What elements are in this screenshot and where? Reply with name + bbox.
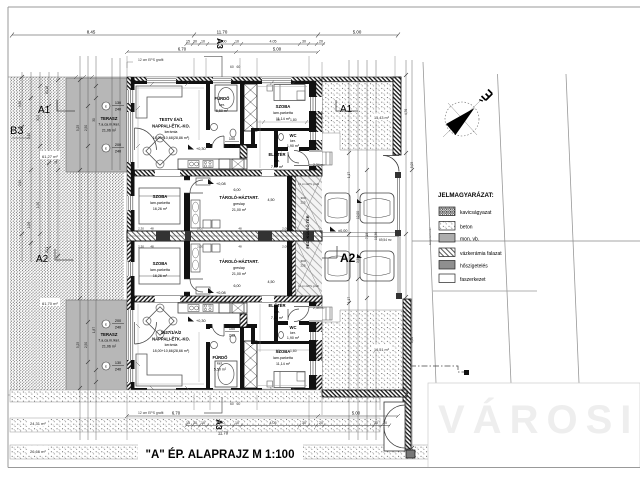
svg-text:1,90 m²: 1,90 m² xyxy=(287,336,300,340)
svg-text:225: 225 xyxy=(300,201,305,205)
svg-text:200: 200 xyxy=(115,143,121,147)
svg-text:10: 10 xyxy=(235,421,239,425)
svg-text:60: 60 xyxy=(230,65,234,69)
svg-text:5,50 m²: 5,50 m² xyxy=(216,109,229,113)
svg-text:300: 300 xyxy=(300,196,305,200)
svg-text:B3: B3 xyxy=(10,125,23,137)
svg-text:21,06 m²: 21,06 m² xyxy=(102,129,117,133)
svg-text:A3: A3 xyxy=(214,419,224,430)
svg-text:1,80: 1,80 xyxy=(290,349,297,353)
svg-text:10: 10 xyxy=(276,349,280,353)
svg-text:vázkerámia falazat: vázkerámia falazat xyxy=(460,251,502,257)
svg-text:A1: A1 xyxy=(38,105,51,116)
svg-text:WC: WC xyxy=(290,133,297,138)
svg-text:15: 15 xyxy=(186,40,190,44)
svg-text:ker.: ker. xyxy=(219,103,225,107)
svg-text:20: 20 xyxy=(319,40,323,44)
svg-text:7.a.ca.m./ker.: 7.a.ca.m./ker. xyxy=(98,123,120,127)
svg-text:TÁROLÓ-HÁZTART.: TÁROLÓ-HÁZTART. xyxy=(219,259,258,264)
svg-text:30: 30 xyxy=(193,40,197,44)
svg-text:hőszigetelés: hőszigetelés xyxy=(460,264,488,270)
svg-text:8.45: 8.45 xyxy=(87,30,96,35)
svg-text:FÜRDŐ: FÜRDŐ xyxy=(213,355,229,360)
svg-text:A3: A3 xyxy=(215,38,225,49)
svg-text:ker.: ker. xyxy=(274,159,280,163)
svg-text:130: 130 xyxy=(115,361,121,365)
svg-text:1,90 m²: 1,90 m² xyxy=(287,144,300,148)
svg-text:30: 30 xyxy=(302,40,306,44)
svg-text:1,17: 1,17 xyxy=(347,297,351,303)
svg-text:100: 100 xyxy=(229,137,235,141)
svg-text:61,27 m²: 61,27 m² xyxy=(42,154,58,159)
svg-text:61,70 m²: 61,70 m² xyxy=(42,301,58,306)
svg-text:WC: WC xyxy=(290,325,297,330)
svg-text:TÁROLÓ-HÁZTART.: TÁROLÓ-HÁZTART. xyxy=(219,195,258,200)
svg-text:213: 213 xyxy=(229,144,235,148)
svg-text:10: 10 xyxy=(276,118,280,122)
svg-text:2,30: 2,30 xyxy=(138,227,144,231)
svg-text:ELŐTÉR: ELŐTÉR xyxy=(269,303,286,308)
svg-text:6,00: 6,00 xyxy=(234,284,241,288)
svg-text:4,76: 4,76 xyxy=(404,109,408,115)
svg-text:greslap: greslap xyxy=(233,202,245,206)
svg-text:2,34 m²: 2,34 m² xyxy=(313,306,325,310)
svg-text:SZOBA: SZOBA xyxy=(153,261,168,266)
svg-text:E: E xyxy=(105,365,107,369)
svg-text:lam.parketta: lam.parketta xyxy=(273,111,293,115)
svg-text:4,50: 4,50 xyxy=(268,280,275,284)
svg-text:21,00 m²: 21,00 m² xyxy=(232,208,247,212)
svg-text:NAPPALI-ÉTK.-KO.: NAPPALI-ÉTK.-KO. xyxy=(152,337,190,342)
svg-text:lam.parketta: lam.parketta xyxy=(150,268,170,272)
svg-text:12 cm EPS grafit: 12 cm EPS grafit xyxy=(138,58,163,62)
svg-text:±0,00: ±0,00 xyxy=(338,229,347,233)
svg-text:20,1: 20,1 xyxy=(45,247,49,253)
svg-text:FED. KÜLSŐ TÉR: FED. KÜLSŐ TÉR xyxy=(305,215,310,248)
svg-text:2,00: 2,00 xyxy=(197,245,203,249)
svg-text:300: 300 xyxy=(300,259,305,263)
svg-text:30: 30 xyxy=(92,118,96,122)
svg-text:9,32: 9,32 xyxy=(18,101,22,107)
svg-text:5.00: 5.00 xyxy=(352,411,361,416)
svg-text:JELMAGYARÁZAT:: JELMAGYARÁZAT: xyxy=(438,192,494,199)
svg-text:240: 240 xyxy=(115,108,121,112)
svg-text:1,90: 1,90 xyxy=(36,202,40,208)
svg-text:FÜRDŐ: FÜRDŐ xyxy=(215,96,231,101)
svg-text:E: E xyxy=(105,147,107,151)
svg-text:5.00: 5.00 xyxy=(273,47,282,52)
svg-text:2,00: 2,00 xyxy=(197,227,203,231)
svg-text:1,17: 1,17 xyxy=(347,172,351,178)
svg-text:5,25: 5,25 xyxy=(76,125,80,131)
svg-text:240: 240 xyxy=(115,326,121,330)
svg-text:1,80: 1,80 xyxy=(290,118,297,122)
svg-text:NAPPALI-ÉTK.-KO.: NAPPALI-ÉTK.-KO. xyxy=(152,124,190,129)
svg-text:7,18: 7,18 xyxy=(365,233,369,239)
svg-text:16,26 m²: 16,26 m² xyxy=(153,274,168,278)
svg-text:5,05: 5,05 xyxy=(410,162,414,168)
svg-text:ker.: ker. xyxy=(290,139,296,143)
svg-text:7,62 m²: 7,62 m² xyxy=(271,165,284,169)
svg-text:A2: A2 xyxy=(36,254,49,265)
svg-text:TERASZ: TERASZ xyxy=(101,332,118,337)
svg-text:A1: A1 xyxy=(340,104,353,115)
svg-text:225: 225 xyxy=(300,264,305,268)
svg-text:130: 130 xyxy=(115,101,121,105)
svg-text:19,36: 19,36 xyxy=(374,232,378,240)
svg-text:10: 10 xyxy=(201,421,205,425)
svg-text:kavicságyazat: kavicságyazat xyxy=(460,210,492,216)
svg-text:10: 10 xyxy=(201,40,205,44)
svg-text:kerámia: kerámia xyxy=(165,343,178,347)
svg-text:60: 60 xyxy=(230,402,234,406)
svg-text:5.00: 5.00 xyxy=(353,30,362,35)
svg-text:100: 100 xyxy=(229,327,235,331)
svg-text:12 cm EPS grafit: 12 cm EPS grafit xyxy=(298,182,319,186)
svg-text:15,43 m²: 15,43 m² xyxy=(374,116,390,120)
svg-text:E: E xyxy=(105,105,107,109)
svg-text:5,50 m²: 5,50 m² xyxy=(214,368,227,372)
svg-text:26,66 m²: 26,66 m² xyxy=(30,449,46,454)
svg-text:30: 30 xyxy=(374,421,378,425)
svg-text:+0,08: +0,08 xyxy=(216,182,226,186)
svg-text:11,14 m²: 11,14 m² xyxy=(276,362,291,366)
svg-text:240: 240 xyxy=(115,150,121,154)
svg-text:VÁROSI: VÁROSI xyxy=(438,397,639,442)
svg-text:48: 48 xyxy=(238,245,242,249)
svg-text:2,34 m²: 2,34 m² xyxy=(313,163,325,167)
svg-text:SZOBA: SZOBA xyxy=(276,104,291,109)
svg-text:2,00: 2,00 xyxy=(282,227,288,231)
svg-text:mon. vb.: mon. vb. xyxy=(460,237,479,243)
svg-text:240: 240 xyxy=(317,357,322,361)
svg-text:60,18: 60,18 xyxy=(45,86,49,94)
svg-text:TESTV I/A/1: TESTV I/A/1 xyxy=(159,117,183,122)
svg-text:2,30: 2,30 xyxy=(138,245,144,249)
svg-text:30: 30 xyxy=(193,421,197,425)
svg-text:213: 213 xyxy=(229,334,235,338)
svg-text:60: 60 xyxy=(237,65,241,69)
svg-text:12 cm EPS grafit: 12 cm EPS grafit xyxy=(138,411,163,415)
svg-text:4,50: 4,50 xyxy=(268,198,275,202)
svg-text:7,62 m²: 7,62 m² xyxy=(271,316,284,320)
svg-text:TERASZ: TERASZ xyxy=(101,116,118,121)
svg-text:1,87: 1,87 xyxy=(92,327,96,333)
svg-text:greslap: greslap xyxy=(233,266,245,270)
svg-text:+0,30: +0,30 xyxy=(196,319,206,323)
svg-text:21,06 m²: 21,06 m² xyxy=(102,345,117,349)
svg-text:12 cm EPS grafit: 12 cm EPS grafit xyxy=(298,284,319,288)
svg-text:60: 60 xyxy=(237,402,241,406)
svg-text:ker.: ker. xyxy=(217,362,223,366)
svg-text:24,31 m²: 24,31 m² xyxy=(30,421,46,426)
svg-text:69,54 m²: 69,54 m² xyxy=(379,238,392,242)
svg-text:A2: A2 xyxy=(340,251,356,265)
svg-text:16,51 m²: 16,51 m² xyxy=(374,348,390,352)
svg-text:48: 48 xyxy=(150,245,154,249)
svg-text:7.a.ca.m./ker.: 7.a.ca.m./ker. xyxy=(98,339,120,343)
svg-text:lam.parketta: lam.parketta xyxy=(273,356,293,360)
svg-text:240: 240 xyxy=(115,368,121,372)
svg-text:11.70: 11.70 xyxy=(217,30,228,35)
svg-text:18,00+10,68(28,86 m²): 18,00+10,68(28,86 m²) xyxy=(153,136,190,140)
svg-text:30: 30 xyxy=(302,421,306,425)
svg-text:2,50: 2,50 xyxy=(84,342,88,348)
svg-text:ker.: ker. xyxy=(274,310,280,314)
svg-text:10: 10 xyxy=(235,40,239,44)
svg-text:ker.: ker. xyxy=(290,331,296,335)
svg-text:6,00: 6,00 xyxy=(234,188,241,192)
svg-text:1,06: 1,06 xyxy=(27,222,31,228)
svg-text:48: 48 xyxy=(150,227,154,231)
svg-text:kerámia: kerámia xyxy=(165,130,178,134)
svg-text:20: 20 xyxy=(319,421,323,425)
svg-text:2,00: 2,00 xyxy=(282,245,288,249)
svg-text:4.05: 4.05 xyxy=(270,421,277,425)
svg-text:16,26 m²: 16,26 m² xyxy=(153,207,168,211)
svg-text:1637/1/A/2: 1637/1/A/2 xyxy=(161,330,182,335)
svg-text:beton: beton xyxy=(460,225,473,231)
svg-text:E: E xyxy=(105,323,107,327)
svg-text:SZOBA: SZOBA xyxy=(153,194,168,199)
svg-text:18,00+10,66(28,66 m²): 18,00+10,66(28,66 m²) xyxy=(153,349,190,353)
svg-text:5,25: 5,25 xyxy=(76,342,80,348)
svg-text:faszerkezet: faszerkezet xyxy=(460,277,486,283)
svg-text:20: 20 xyxy=(383,421,387,425)
svg-text:200: 200 xyxy=(115,319,121,323)
svg-text:21,00 m²: 21,00 m² xyxy=(232,272,247,276)
svg-text:12,00: 12,00 xyxy=(356,211,360,219)
svg-text:48: 48 xyxy=(238,227,242,231)
svg-text:2,19: 2,19 xyxy=(18,180,22,186)
svg-text:240: 240 xyxy=(317,115,322,119)
svg-text:2,50: 2,50 xyxy=(84,125,88,131)
svg-text:ELŐTÉR: ELŐTÉR xyxy=(269,152,286,157)
svg-text:6.70: 6.70 xyxy=(172,411,181,416)
svg-text:4.05: 4.05 xyxy=(270,40,277,44)
svg-text:6.70: 6.70 xyxy=(178,47,187,52)
svg-text:11.70: 11.70 xyxy=(218,431,229,436)
svg-text:"A" ÉP. ALAPRAJZ M 1:100: "A" ÉP. ALAPRAJZ M 1:100 xyxy=(146,448,295,461)
svg-text:lam.parketta: lam.parketta xyxy=(150,201,170,205)
svg-text:+0,30: +0,30 xyxy=(196,147,206,151)
svg-text:beépített bútor: beépített bútor xyxy=(428,227,432,245)
svg-text:+0,08: +0,08 xyxy=(216,291,226,295)
svg-text:3,50: 3,50 xyxy=(410,337,414,343)
svg-text:15: 15 xyxy=(186,421,190,425)
